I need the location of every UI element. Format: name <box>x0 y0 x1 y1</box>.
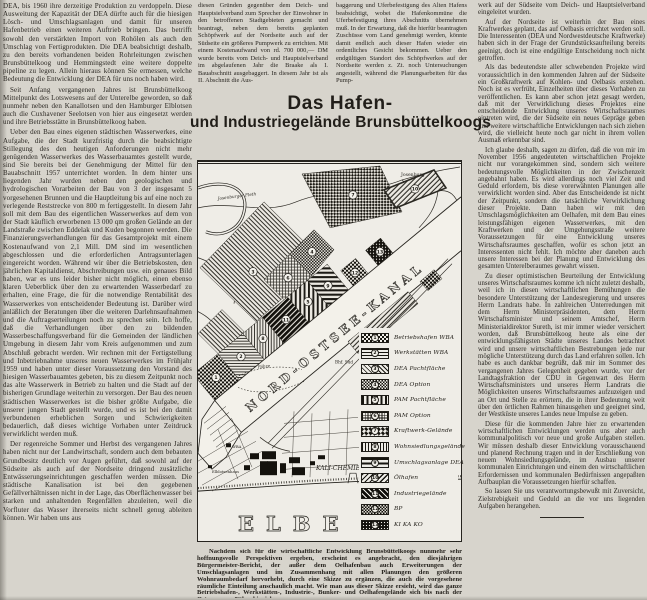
legend-swatch-hlines-icon: 2 <box>361 348 389 359</box>
legend-label: PAM Option <box>394 413 431 419</box>
legend-label: Ölhafen <box>394 475 418 481</box>
paragraph: Ueber den Bau eines eigenen städtischen … <box>3 128 192 438</box>
svg-text:4: 4 <box>310 249 313 255</box>
paragraph: diesen Gründen gegenüber dem Deich- und … <box>198 2 328 85</box>
paragraph: So lassen Sie uns verantwortungsbewußt m… <box>478 488 645 510</box>
map-parcel-badge: 13 <box>376 248 384 256</box>
figure-caption: Nachdem sich für die wirtschaftliche Ent… <box>197 549 462 598</box>
legend-number: 12 <box>371 505 379 513</box>
legend-number: 4 <box>371 381 379 389</box>
map-parcel-badge: 6 <box>284 274 292 282</box>
map-parcel-badge: 5 <box>304 297 312 305</box>
legend-label: KI KA KO <box>394 522 423 528</box>
svg-text:12: 12 <box>352 270 358 276</box>
legend-number: 8 <box>371 443 379 451</box>
svg-text:6: 6 <box>286 275 289 281</box>
map-parcel-badge: 1 <box>212 373 220 381</box>
middle-column-b: baggerung und Uferbefestigung des Alten … <box>336 2 467 93</box>
paragraph: Diese für die kommenden Jahre hier zu er… <box>478 421 645 487</box>
paragraph: Auf der Nordseite ist weiterhin der Bau … <box>478 19 645 63</box>
paragraph: Zu dieser optimistischen Beurteilung der… <box>478 273 645 419</box>
legend-item: 11Industriegelände <box>361 486 458 502</box>
svg-text:11: 11 <box>283 317 289 323</box>
paragraph: werk auf der Südseite vom Deich- und Hau… <box>478 2 645 17</box>
map-parcel-badge: 7 <box>349 191 357 199</box>
map-parcel-badge: 4 <box>308 248 316 256</box>
svg-text:7: 7 <box>351 193 354 199</box>
svg-text:3: 3 <box>251 269 254 275</box>
legend-label: BP <box>394 506 403 512</box>
legend-item: 12BP <box>361 502 458 518</box>
legend-item: 10Ölhafen <box>361 470 458 486</box>
legend-number: 5 <box>371 396 379 404</box>
legend-item: 2Werkstätten WBA <box>361 346 458 362</box>
headline-line-2: und Industriegelände Brunsbüttelkoogs <box>190 115 490 132</box>
map-parcel-badge: 11 <box>282 315 290 323</box>
legend-swatch-checker-icon: 4 <box>361 379 389 390</box>
map-parcel-badge: 8 <box>259 334 267 342</box>
map-legend: 1Betriebshafen WBA2Werkstätten WBA3DEA P… <box>359 328 458 535</box>
legend-item: 3DEA Pachtfläche <box>361 361 458 377</box>
map-figure: 12811591213364710JosenburgJosenburger Fl… <box>197 160 462 542</box>
svg-text:2: 2 <box>239 354 242 360</box>
legend-number: 2 <box>371 349 379 357</box>
legend-item: 13KI KA KO <box>361 517 458 533</box>
paragraph: Seit Anfang vergangenen Jahres ist Bruns… <box>3 86 192 127</box>
paragraph: Der regenreiche Sommer und Herbst des ve… <box>3 440 192 522</box>
map-parcel-badge: 9 <box>324 281 332 289</box>
newspaper-page: DEA, bis 1960 ihre derzeitige Produktion… <box>0 0 647 600</box>
right-column: werk auf der Südseite vom Deich- und Hau… <box>478 2 645 598</box>
legend-swatch-diag2-icon: 10 <box>361 473 389 484</box>
legend-swatch-diamond-icon: 7 <box>361 426 389 437</box>
left-column: DEA, bis 1960 ihre derzeitige Produktion… <box>3 2 192 598</box>
legend-label: DEA Option <box>394 382 430 388</box>
svg-text:8: 8 <box>261 336 264 342</box>
legend-swatch-grid-icon: 6 <box>361 411 389 422</box>
legend-item: 8Wohnsiedlungsgelände <box>361 439 458 455</box>
legend-item: 9Umschlagsanlage DEA <box>361 455 458 471</box>
legend-item: 4DEA Option <box>361 377 458 393</box>
legend-label: Betriebshafen WBA <box>394 335 454 341</box>
svg-text:10: 10 <box>412 187 418 193</box>
legend-item: 6PAM Option <box>361 408 458 424</box>
legend-swatch-checkerdark-icon: 1 <box>361 333 389 344</box>
legend-number: 6 <box>371 412 379 420</box>
legend-number: 9 <box>371 459 379 467</box>
legend-swatch-darkdiag-icon: 11 <box>361 488 389 499</box>
legend-item: 7Kraftwerk-Gelände <box>361 424 458 440</box>
map-label: Josenburger Fleth <box>217 191 257 201</box>
legend-item: 1Betriebshafen WBA <box>361 330 458 346</box>
legend-number: 11 <box>371 490 379 498</box>
map-label: KALI-CHEMIE <box>315 465 361 472</box>
map-parcel-badge: 3 <box>249 268 257 276</box>
map-label: Josenburg <box>400 172 425 178</box>
svg-text:5: 5 <box>306 299 309 305</box>
legend-label: Industriegelände <box>394 491 447 497</box>
legend-label: PAM Pachtfläche <box>394 397 446 403</box>
map-label: WBA <box>232 444 242 449</box>
road-ring-west <box>198 184 245 234</box>
map-parcel-badge: 2 <box>237 352 245 360</box>
kali-chemie-buildings <box>244 451 325 475</box>
legend-swatch-bp-icon: 12 <box>361 504 389 515</box>
map-label: Bhf. Süd <box>335 359 353 364</box>
article-end-rule <box>540 517 584 518</box>
paragraph: Ich glaube deshalb, sagen zu dürfen, daß… <box>478 147 645 271</box>
legend-swatch-hstripes-icon: 9 <box>361 457 389 468</box>
headline-line-1: Das Hafen- <box>190 94 490 115</box>
legend-label: Umschlagsanlage DEA <box>394 460 464 466</box>
legend-item: 5PAM Pachtfläche <box>361 392 458 408</box>
legend-number: 10 <box>371 474 379 482</box>
article-headline: Das Hafen- und Industriegelände Brunsbüt… <box>190 94 490 131</box>
map-label: Elblotsenhaus <box>212 469 239 474</box>
legend-number: 3 <box>371 365 379 373</box>
legend-label: Werkstätten WBA <box>394 350 448 356</box>
legend-swatch-diag-icon: 3 <box>361 364 389 375</box>
legend-swatch-vbars-icon: 5 <box>361 395 389 406</box>
legend-label: Wohnsiedlungsgelände <box>394 444 465 450</box>
map-parcel-badge: 10 <box>411 185 419 193</box>
paragraph: Als das bedeutendste aller schwebenden P… <box>478 64 645 144</box>
paragraph: baggerung und Uferbefestigung des Alten … <box>336 2 467 85</box>
svg-text:1: 1 <box>214 375 217 381</box>
map-parcel-badge: 12 <box>351 269 359 277</box>
middle-column-a: diesen Gründen gegenüber dem Deich- und … <box>198 2 328 93</box>
legend-label: DEA Pachtfläche <box>394 366 445 372</box>
legend-label: Kraftwerk-Gelände <box>394 428 452 434</box>
paragraph: DEA, bis 1960 ihre derzeitige Produktion… <box>3 2 192 84</box>
legend-number: 13 <box>371 521 379 529</box>
legend-swatch-dotsdark-icon: 13 <box>361 520 389 531</box>
legend-number: 7 <box>371 427 379 435</box>
svg-text:9: 9 <box>326 283 329 289</box>
svg-text:13: 13 <box>377 249 383 255</box>
legend-number: 1 <box>371 334 379 342</box>
map-label: ELBE <box>238 511 351 536</box>
legend-swatch-vlines-icon: 8 <box>361 442 389 453</box>
